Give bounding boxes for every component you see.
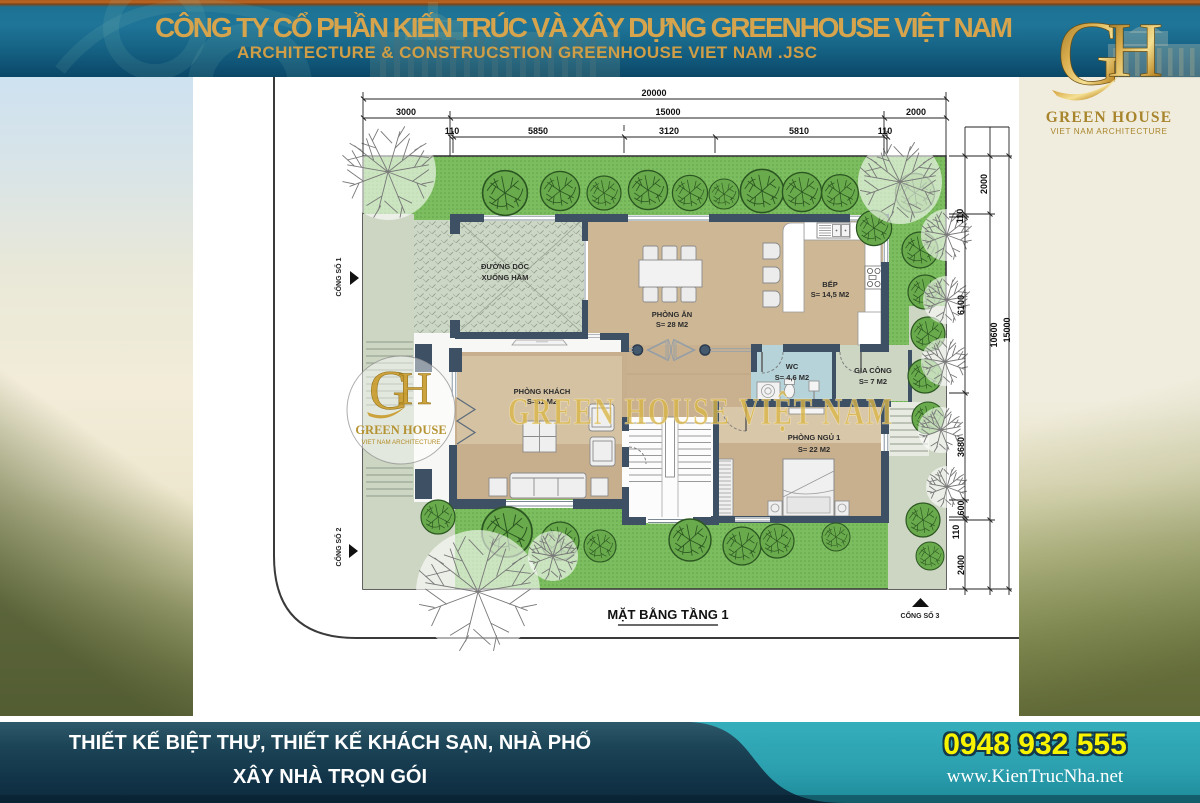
svg-text:S= 4,6 M2: S= 4,6 M2 — [775, 373, 809, 382]
svg-text:MẶT BẰNG TẦNG 1: MẶT BẰNG TẦNG 1 — [607, 607, 728, 622]
svg-text:GREEN HOUSE: GREEN HOUSE — [355, 423, 446, 437]
svg-text:PHÒNG ĂN: PHÒNG ĂN — [652, 310, 692, 319]
svg-text:5810: 5810 — [789, 126, 809, 136]
svg-text:GREEN HOUSE VIỆT NAM: GREEN HOUSE VIỆT NAM — [508, 390, 894, 433]
svg-text:GIA CÔNG: GIA CÔNG — [854, 366, 892, 375]
svg-text:20000: 20000 — [641, 88, 666, 98]
svg-text:110: 110 — [951, 525, 961, 540]
svg-text:WC: WC — [786, 362, 799, 371]
svg-text:S= 14,5 M2: S= 14,5 M2 — [811, 290, 850, 299]
svg-text:S= 22 M2: S= 22 M2 — [798, 445, 830, 454]
svg-text:110: 110 — [955, 209, 965, 224]
svg-text:ĐƯỜNG DỐC: ĐƯỜNG DỐC — [481, 261, 530, 271]
svg-text:110: 110 — [878, 126, 893, 136]
svg-text:2000: 2000 — [979, 174, 989, 194]
svg-text:5850: 5850 — [528, 126, 548, 136]
svg-text:H: H — [398, 363, 432, 415]
svg-text:CỔNG SỐ 1: CỔNG SỐ 1 — [333, 257, 343, 296]
svg-text:15000: 15000 — [655, 107, 680, 117]
svg-text:CỔNG SỐ 3: CỔNG SỐ 3 — [901, 610, 940, 620]
svg-text:600: 600 — [956, 500, 966, 515]
svg-text:15000: 15000 — [1002, 317, 1012, 342]
svg-text:S= 28 M2: S= 28 M2 — [656, 320, 688, 329]
svg-text:2000: 2000 — [906, 107, 926, 117]
svg-text:S= 7 M2: S= 7 M2 — [859, 377, 887, 386]
svg-text:BẾP: BẾP — [822, 279, 837, 289]
svg-text:CỔNG SỐ 2: CỔNG SỐ 2 — [333, 527, 343, 566]
svg-text:PHÒNG NGỦ 1: PHÒNG NGỦ 1 — [788, 433, 841, 442]
svg-text:10600: 10600 — [989, 322, 999, 347]
svg-text:VIET NAM ARCHITECTURE: VIET NAM ARCHITECTURE — [362, 439, 441, 446]
svg-text:2400: 2400 — [956, 555, 966, 575]
svg-text:3000: 3000 — [396, 107, 416, 117]
svg-text:XUỐNG HẦM: XUỐNG HẦM — [482, 272, 529, 282]
svg-text:110: 110 — [445, 126, 460, 136]
svg-text:3680: 3680 — [956, 437, 966, 457]
svg-text:3120: 3120 — [659, 126, 679, 136]
svg-text:6100: 6100 — [956, 295, 966, 315]
